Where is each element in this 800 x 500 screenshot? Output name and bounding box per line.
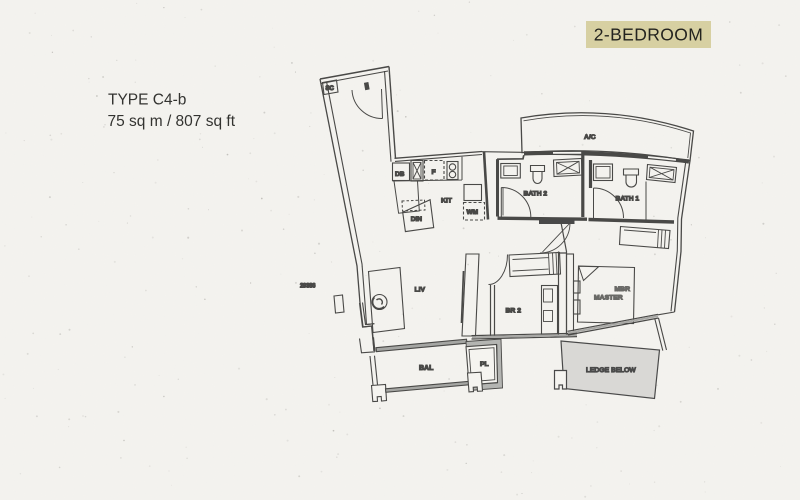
svg-text:BATH 1: BATH 1 [616,196,640,203]
svg-text:DB: DB [395,171,405,178]
svg-text:LEDGE BELOW: LEDGE BELOW [586,367,636,374]
svg-text:29386: 29386 [300,284,316,290]
svg-text:BATH 2: BATH 2 [524,191,548,198]
svg-text:75 sq m / 807 sq ft: 75 sq m / 807 sq ft [108,113,236,130]
svg-text:F: F [432,169,436,176]
svg-text:PL: PL [480,361,489,368]
svg-text:SC: SC [326,86,335,92]
svg-text:KIT: KIT [441,198,453,205]
svg-text:DIN: DIN [411,216,423,223]
svg-text:BAL: BAL [419,365,434,372]
svg-text:WM: WM [467,209,479,216]
svg-text:MBR: MBR [615,286,631,293]
svg-text:MASTER: MASTER [594,295,623,302]
svg-text:TYPE C4-b: TYPE C4-b [108,92,186,109]
svg-text:A/C: A/C [584,134,596,141]
svg-text:2-BEDROOM: 2-BEDROOM [594,25,704,45]
svg-text:LIV: LIV [415,287,426,294]
svg-text:BR 2: BR 2 [506,308,522,315]
